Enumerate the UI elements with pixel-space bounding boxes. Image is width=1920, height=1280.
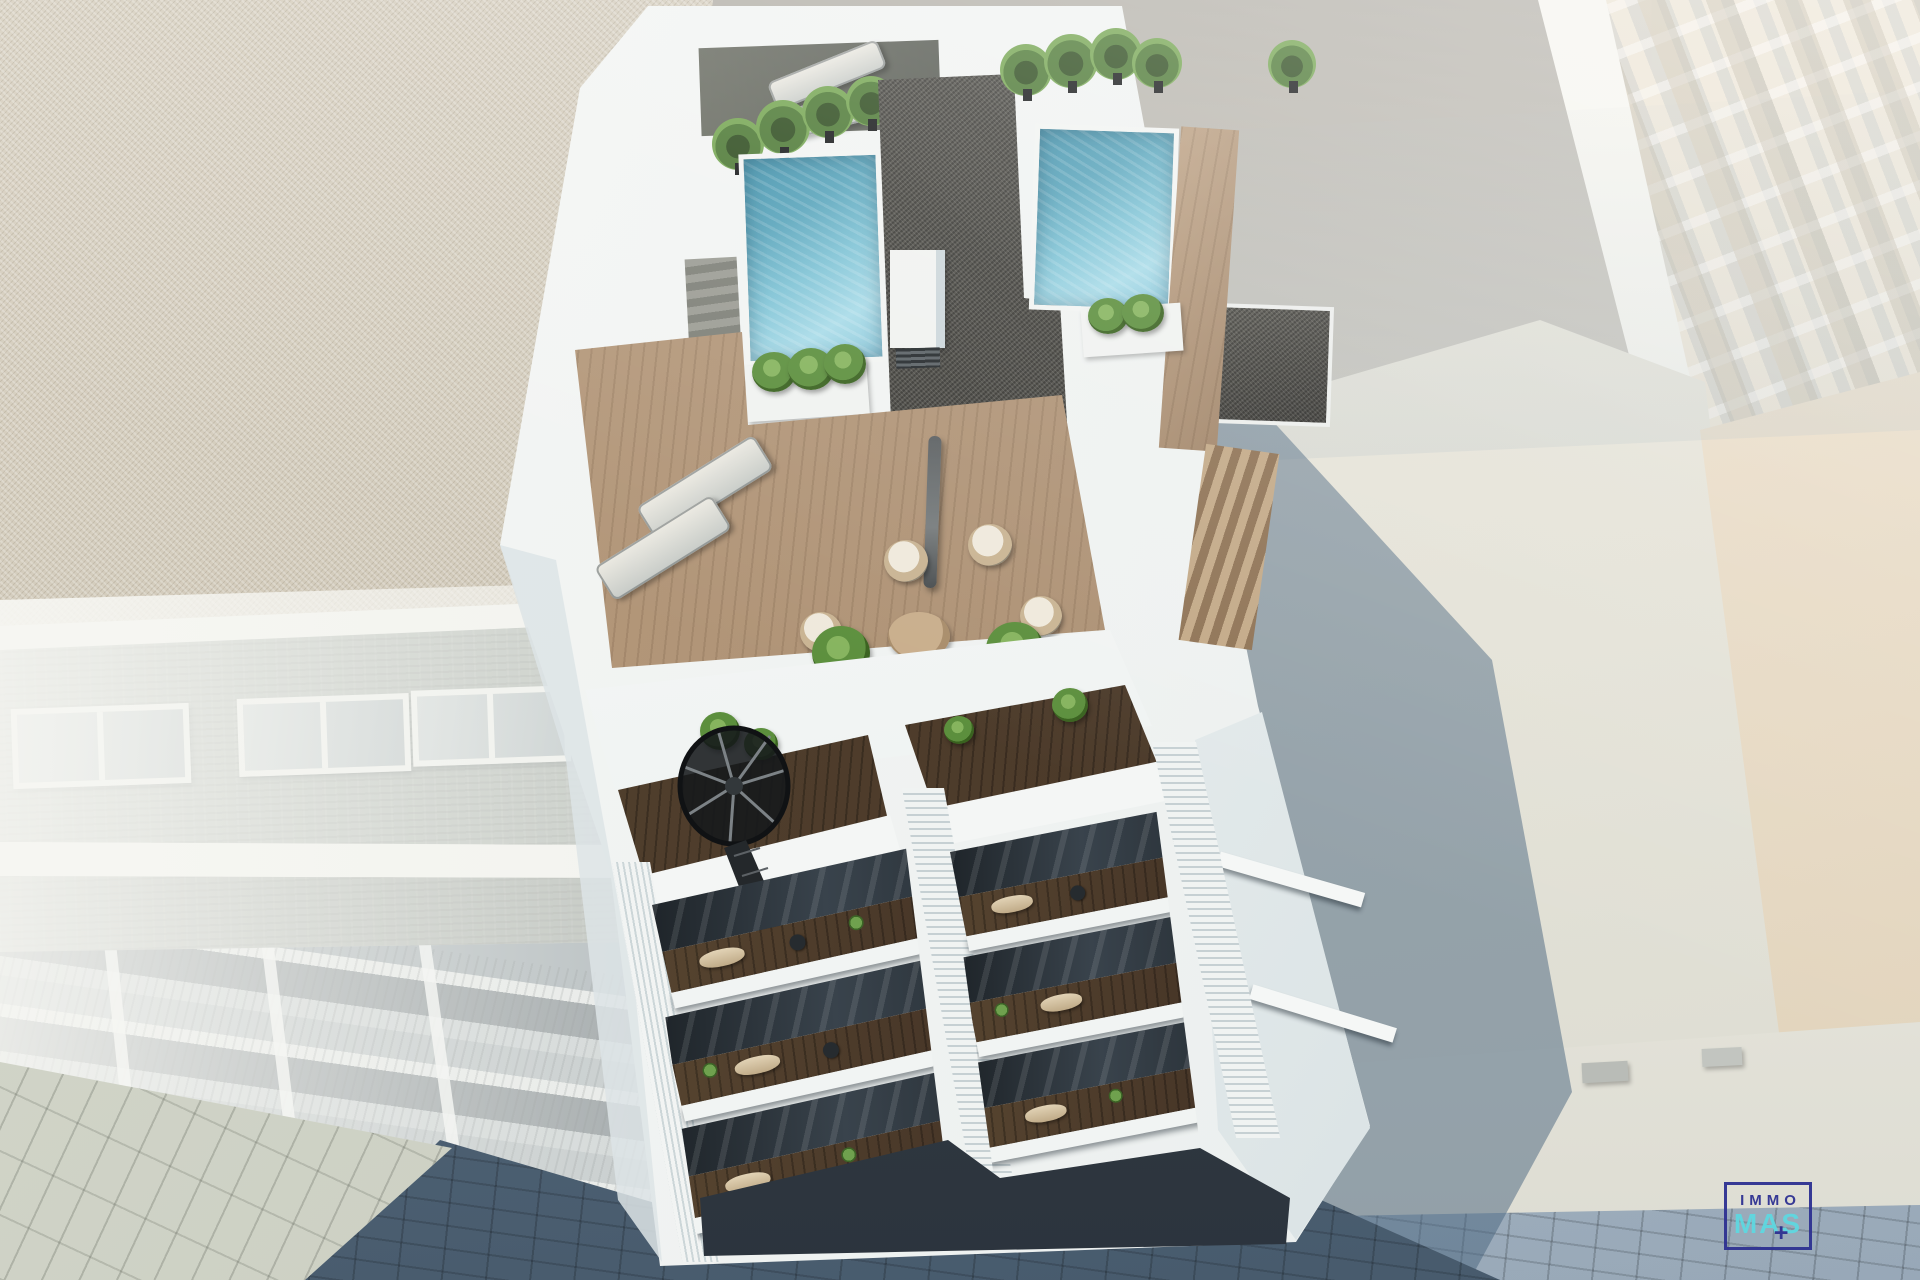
palm-plant [1044,34,1098,88]
balcony-plant [840,1146,858,1164]
balcony-lounger [1024,1102,1068,1126]
balcony-lounger [990,892,1034,916]
balcony-plant [847,914,865,932]
balcony-plant [1108,1088,1124,1104]
balcony-table [1069,884,1087,902]
balcony-lounger [733,1052,782,1079]
palm-plant [1268,40,1316,88]
balcony-lounger [698,944,747,971]
balcony-lounger [1039,991,1083,1015]
planter-shrubs [824,344,866,384]
balcony-table [821,1041,840,1060]
rattan-chair [884,540,928,582]
plunge-pool-left [738,150,887,367]
planter-shrubs [1122,294,1164,332]
penthouse-plant [944,716,974,744]
immomas-logo-watermark: IMMO MAS + [1724,1182,1812,1250]
logo-text-mas-letters: MAS [1734,1208,1802,1239]
gravel-bulkhead-roof-right [1210,303,1334,427]
penthouse-plant [1052,688,1088,722]
render-scene: IMMO MAS + [0,0,1920,1280]
louver-vent [896,347,941,369]
balcony-table [788,933,807,952]
main-building [0,0,1920,1280]
balcony-plant [701,1061,719,1079]
rattan-chair [968,524,1012,566]
palm-plant [1132,38,1182,88]
roof-chimney [890,250,945,348]
logo-text-immo: IMMO [1735,1192,1801,1209]
palm-plant [1000,44,1052,96]
balcony-plant [993,1002,1009,1018]
logo-text-mas: MAS + [1734,1210,1802,1238]
logo-plus-icon: + [1774,1221,1791,1246]
plunge-pool-right [1029,124,1179,315]
